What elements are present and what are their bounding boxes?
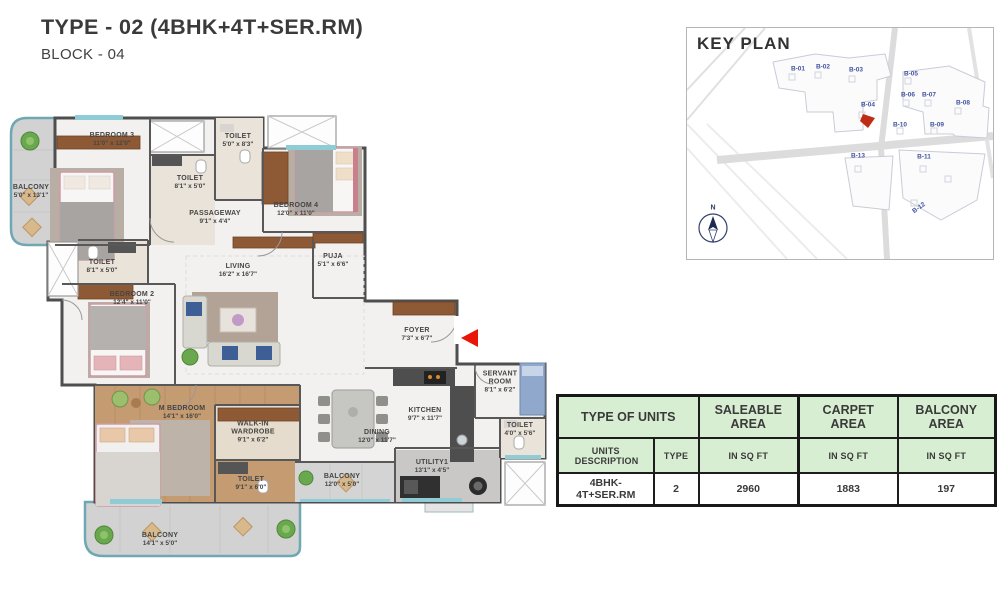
area-table: TYPE OF UNITS SALEABLE AREA CARPET AREA …	[556, 394, 997, 507]
room-label-passageway: PASSAGEWAY9'1" x 4'4"	[189, 210, 241, 226]
cell-saleable: 2960	[699, 473, 799, 506]
header: TYPE - 02 (4BHK+4T+SER.RM) BLOCK - 04	[41, 16, 363, 63]
header-sqft-1: IN SQ FT	[699, 438, 799, 473]
cell-balcony: 197	[898, 473, 996, 506]
keyplan-block-b11: B-11	[917, 154, 931, 161]
room-label-bedroom2: BEDROOM 212'4" x 11'0"	[110, 291, 155, 307]
room-label-living: LIVING16'2" x 16'7"	[219, 263, 257, 279]
keyplan-block-b04: B-04	[861, 102, 875, 109]
room-label-balcony-2: BALCONY12'0" x 5'0"	[324, 473, 360, 489]
room-label-bedroom3: BEDROOM 311'0" x 12'0"	[90, 132, 135, 148]
keyplan-block-b10: B-10	[893, 122, 907, 129]
keyplan-block-b08: B-08	[956, 100, 970, 107]
cell-description: 4BHK- 4T+SER.RM	[558, 473, 654, 506]
foyer-lintel	[393, 302, 455, 315]
header-type: TYPE	[654, 438, 699, 473]
entry-arrow-icon	[461, 329, 478, 347]
room-label-foyer: FOYER7'3" x 6'7"	[402, 327, 433, 343]
keyplan-block-b09: B-09	[930, 122, 944, 129]
keyplan-map	[687, 28, 993, 259]
keyplan-block-b07: B-07	[922, 92, 936, 99]
room-label-kitchen: KITCHEN9'7" x 11'7"	[408, 407, 442, 423]
header-sqft-2: IN SQ FT	[799, 438, 898, 473]
header-type-of-units: TYPE OF UNITS	[558, 396, 699, 439]
compass-north-label: N	[710, 205, 715, 212]
keyplan-block-b05: B-05	[904, 71, 918, 78]
room-label-master-bedroom: M BEDROOM14'1" x 16'0"	[159, 405, 206, 421]
room-label-balcony-3: BALCONY14'1" x 5'0"	[142, 532, 178, 548]
room-label-balcony-1: BALCONY5'0" x 13'1"	[13, 184, 49, 200]
room-label-toilet-5: TOILET9'1" x 6'0"	[236, 476, 267, 492]
table-header-row-1: TYPE OF UNITS SALEABLE AREA CARPET AREA …	[558, 396, 996, 439]
keyplan-panel: KEY PLAN N B-01 B-02	[686, 27, 994, 260]
tv-console	[233, 237, 315, 248]
wardrobe-strip	[218, 408, 300, 421]
puja-lintel	[313, 233, 363, 243]
header-saleable-area: SALEABLE AREA	[699, 396, 799, 439]
bed-master	[96, 424, 160, 506]
room-label-toilet-4: TOILET4'0" x 5'6"	[505, 422, 536, 438]
compass-icon	[699, 214, 727, 242]
room-label-dining: DINING12'0" x 11'7"	[358, 429, 396, 445]
table-data-row: 4BHK- 4T+SER.RM 2 2960 1883 197	[558, 473, 996, 506]
cell-type: 2	[654, 473, 699, 506]
bed-bedroom2	[90, 304, 146, 376]
page-subtitle: BLOCK - 04	[41, 46, 363, 63]
keyplan-block-b06: B-06	[901, 92, 915, 99]
keyplan-title: KEY PLAN	[697, 34, 791, 54]
keyplan-block-b13: B-13	[851, 153, 865, 160]
keyplan-block-b03: B-03	[849, 67, 863, 74]
table-header-row-2: UNITS DESCRIPTION TYPE IN SQ FT IN SQ FT…	[558, 438, 996, 473]
entry-door-gap	[454, 316, 460, 344]
room-label-bedroom4: BEDROOM 412'0" x 11'0"	[274, 202, 319, 218]
header-carpet-area: CARPET AREA	[799, 396, 898, 439]
room-label-walkin-wardrobe: WALK-IN WARDROBE9'1" x 6'2"	[229, 420, 277, 443]
header-balcony-area: BALCONY AREA	[898, 396, 996, 439]
desk-bedroom4	[262, 152, 288, 204]
room-label-toilet-3: TOILET8'1" x 5'0"	[87, 259, 118, 275]
floorplan-page: { "title": "TYPE - 02 (4BHK+4T+SER.RM)",…	[0, 0, 1000, 609]
room-label-toilet-1: TOILET8'1" x 5'0"	[175, 175, 206, 191]
keyplan-block-b01: B-01	[791, 66, 805, 73]
balcony-bottom-shape	[85, 502, 300, 556]
page-title: TYPE - 02 (4BHK+4T+SER.RM)	[41, 16, 363, 40]
room-label-puja: PUJA5'1" x 6'6"	[318, 253, 349, 269]
header-sqft-3: IN SQ FT	[898, 438, 996, 473]
cell-carpet: 1883	[799, 473, 898, 506]
room-label-servant-room: SERVANT ROOM8'1" x 6'2"	[476, 370, 524, 393]
room-label-utility: UTILITY113'1" x 4'5"	[415, 459, 450, 475]
keyplan-block-b02: B-02	[816, 64, 830, 71]
header-units-description: UNITS DESCRIPTION	[558, 438, 654, 473]
room-label-toilet-2: TOILET5'0" x 8'3"	[223, 133, 254, 149]
